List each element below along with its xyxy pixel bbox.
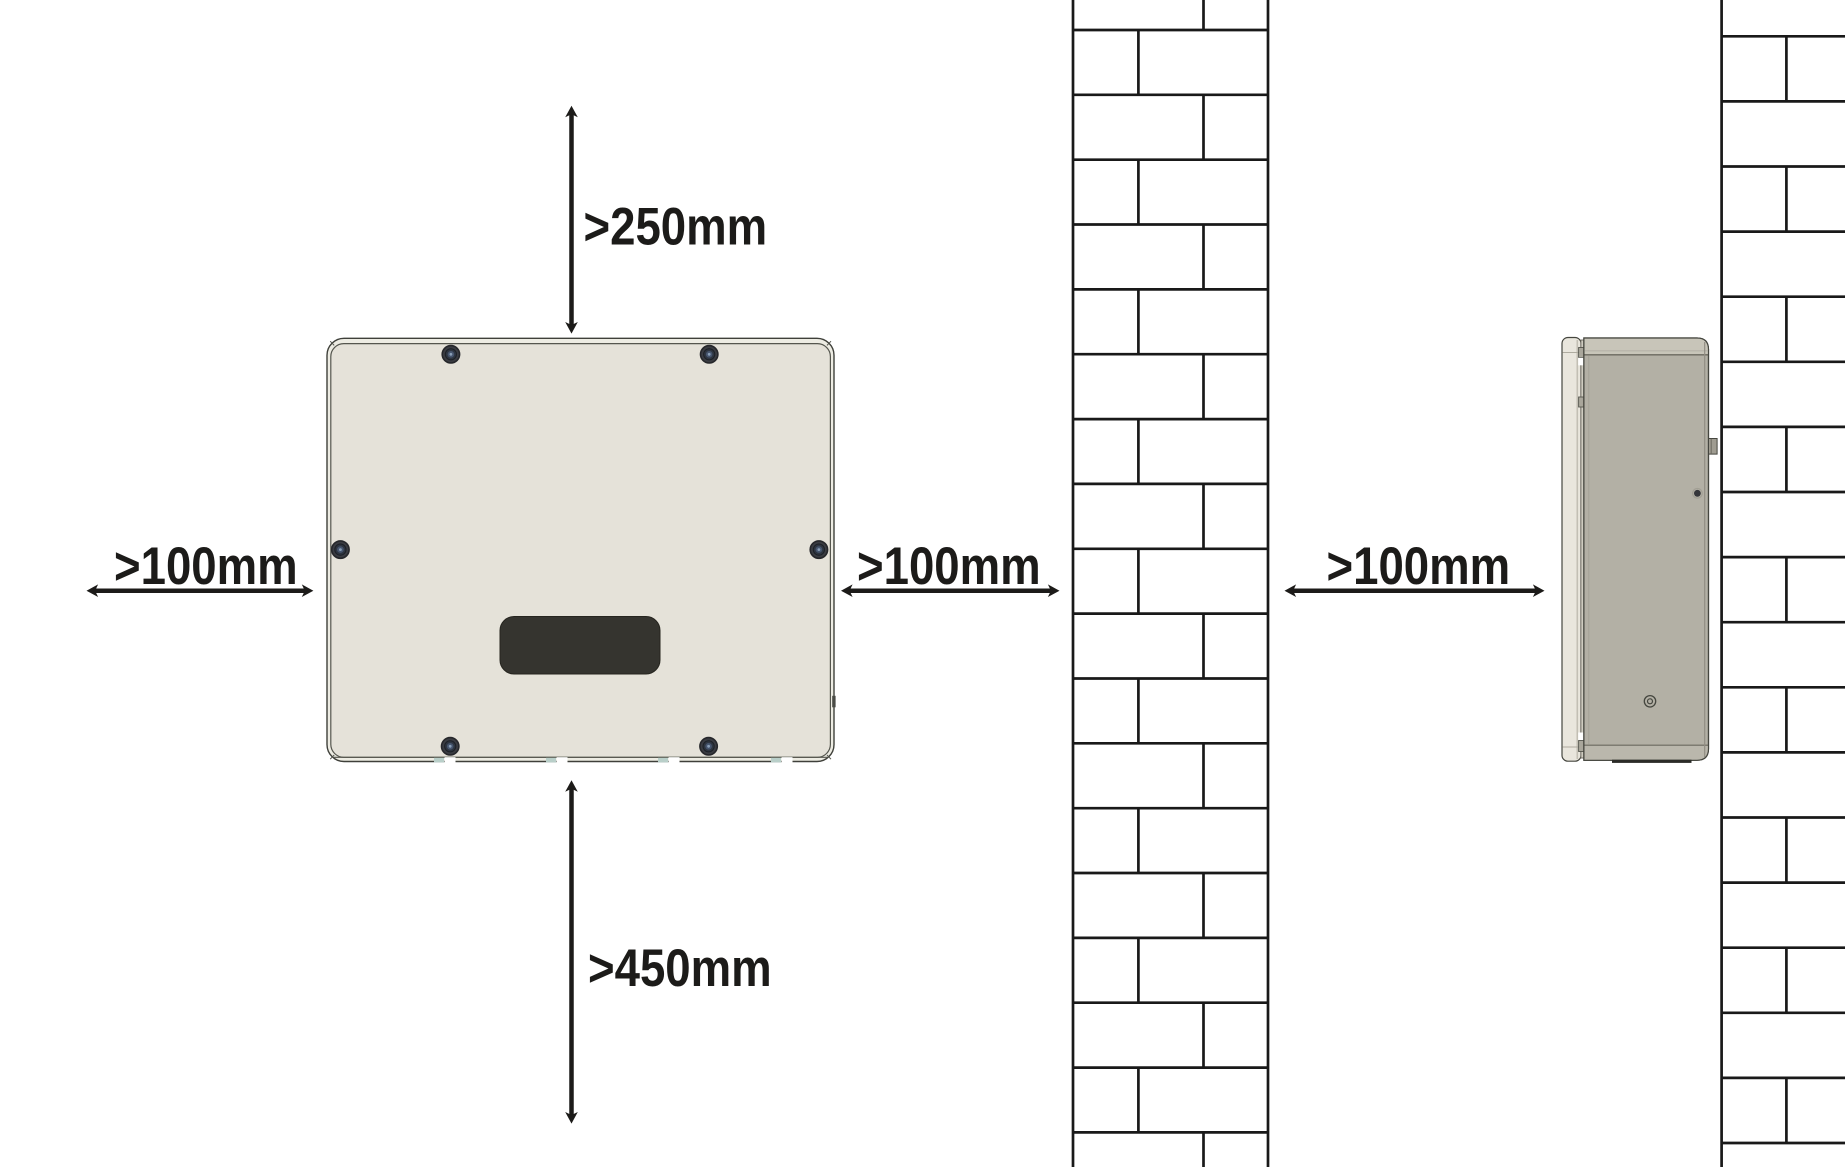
svg-text:>100mm: >100mm xyxy=(857,538,1041,596)
svg-text:>100mm: >100mm xyxy=(114,538,298,596)
svg-text:>450mm: >450mm xyxy=(588,940,772,998)
svg-text:>100mm: >100mm xyxy=(1327,538,1511,596)
svg-text:>250mm: >250mm xyxy=(584,199,768,257)
